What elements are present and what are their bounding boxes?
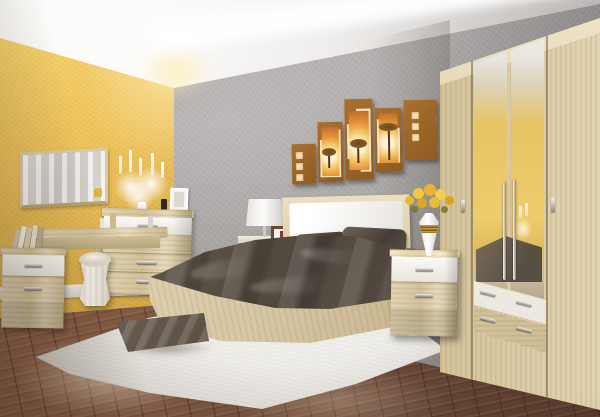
photo-vignette [0, 0, 600, 417]
bedroom-photo [0, 0, 600, 417]
